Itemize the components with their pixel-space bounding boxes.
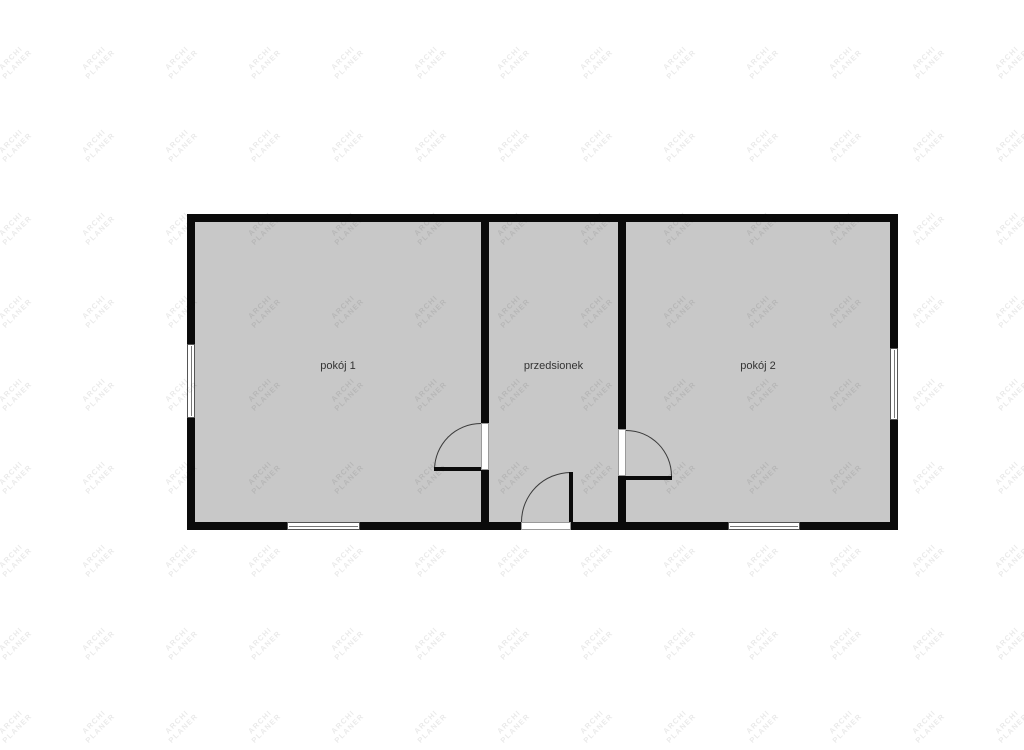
watermark-text: ARCHIPLANER [0, 119, 39, 168]
watermark-text: ARCHIPLANER [72, 202, 121, 251]
watermark-text: ARCHIPLANER [902, 534, 951, 583]
watermark-text: ARCHIPLANER [985, 700, 1024, 749]
watermark-text: ARCHIPLANER [736, 700, 785, 749]
watermark-text: ARCHIPLANER [653, 700, 702, 749]
watermark-text: ARCHIPLANER [0, 617, 39, 666]
watermark-text: ARCHIPLANER [902, 285, 951, 334]
watermark-text: ARCHIPLANER [238, 700, 287, 749]
floor-plan: pokój 1 przedsionek pokój 2 [187, 214, 898, 530]
watermark-text: ARCHIPLANER [404, 700, 453, 749]
watermark-text: ARCHIPLANER [238, 534, 287, 583]
window-bottom-pokoj-2 [728, 522, 800, 530]
watermark-text: ARCHIPLANER [238, 119, 287, 168]
watermark-text: ARCHIPLANER [72, 451, 121, 500]
watermark-text: ARCHIPLANER [985, 119, 1024, 168]
watermark-text: ARCHIPLANER [985, 285, 1024, 334]
watermark-text: ARCHIPLANER [321, 36, 370, 85]
room-label-przedsionek: przedsionek [524, 360, 583, 372]
door-opening-pokoj-1 [481, 423, 489, 470]
watermark-text: ARCHIPLANER [155, 700, 204, 749]
watermark-text: ARCHIPLANER [819, 700, 868, 749]
watermark-text: ARCHIPLANER [570, 119, 619, 168]
watermark-text: ARCHIPLANER [985, 617, 1024, 666]
watermark-text: ARCHIPLANER [72, 119, 121, 168]
room-label-pokoj-2: pokój 2 [740, 360, 775, 372]
watermark-text: ARCHIPLANER [72, 700, 121, 749]
watermark-text: ARCHIPLANER [985, 368, 1024, 417]
watermark-text: ARCHIPLANER [819, 119, 868, 168]
watermark-text: ARCHIPLANER [238, 36, 287, 85]
watermark-text: ARCHIPLANER [155, 36, 204, 85]
watermark-text: ARCHIPLANER [985, 202, 1024, 251]
watermark-text: ARCHIPLANER [902, 368, 951, 417]
door-leaf-pokoj-2 [626, 476, 672, 480]
watermark-text: ARCHIPLANER [404, 617, 453, 666]
watermark-text: ARCHIPLANER [902, 36, 951, 85]
watermark-text: ARCHIPLANER [902, 119, 951, 168]
watermark-text: ARCHIPLANER [321, 700, 370, 749]
watermark-text: ARCHIPLANER [570, 36, 619, 85]
door-leaf-pokoj-1 [434, 467, 481, 471]
watermark-text: ARCHIPLANER [736, 36, 785, 85]
watermark-text: ARCHIPLANER [736, 119, 785, 168]
watermark-text: ARCHIPLANER [404, 36, 453, 85]
watermark-text: ARCHIPLANER [72, 285, 121, 334]
watermark-text: ARCHIPLANER [0, 368, 39, 417]
watermark-text: ARCHIPLANER [0, 36, 39, 85]
watermark-text: ARCHIPLANER [653, 36, 702, 85]
watermark-text: ARCHIPLANER [72, 36, 121, 85]
door-opening-pokoj-2 [618, 429, 626, 476]
watermark-text: ARCHIPLANER [72, 617, 121, 666]
watermark-text: ARCHIPLANER [736, 534, 785, 583]
room-pokoj-1: pokój 1 [195, 222, 481, 522]
watermark-text: ARCHIPLANER [902, 451, 951, 500]
watermark-text: ARCHIPLANER [653, 617, 702, 666]
watermark-text: ARCHIPLANER [487, 119, 536, 168]
door-opening-entrance [521, 522, 571, 530]
room-label-pokoj-1: pokój 1 [320, 360, 355, 372]
watermark-text: ARCHIPLANER [653, 119, 702, 168]
watermark-text: ARCHIPLANER [819, 617, 868, 666]
watermark-text: ARCHIPLANER [0, 700, 39, 749]
door-leaf-entrance [569, 472, 573, 522]
watermark-text: ARCHIPLANER [321, 617, 370, 666]
watermark-text: ARCHIPLANER [653, 534, 702, 583]
watermark-text: ARCHIPLANER [819, 36, 868, 85]
watermark-text: ARCHIPLANER [736, 617, 785, 666]
watermark-text: ARCHIPLANER [902, 700, 951, 749]
watermark-text: ARCHIPLANER [487, 36, 536, 85]
watermark-text: ARCHIPLANER [985, 534, 1024, 583]
watermark-text: ARCHIPLANER [570, 617, 619, 666]
watermark-text: ARCHIPLANER [404, 534, 453, 583]
watermark-text: ARCHIPLANER [0, 451, 39, 500]
watermark-text: ARCHIPLANER [487, 700, 536, 749]
watermark-text: ARCHIPLANER [902, 617, 951, 666]
watermark-text: ARCHIPLANER [321, 119, 370, 168]
watermark-text: ARCHIPLANER [487, 617, 536, 666]
watermark-text: ARCHIPLANER [72, 534, 121, 583]
watermark-text: ARCHIPLANER [819, 534, 868, 583]
watermark-text: ARCHIPLANER [72, 368, 121, 417]
watermark-text: ARCHIPLANER [0, 202, 39, 251]
watermark-text: ARCHIPLANER [570, 534, 619, 583]
watermark-text: ARCHIPLANER [570, 700, 619, 749]
watermark-text: ARCHIPLANER [238, 617, 287, 666]
watermark-text: ARCHIPLANER [155, 617, 204, 666]
watermark-text: ARCHIPLANER [404, 119, 453, 168]
window-bottom-pokoj-1 [287, 522, 360, 530]
watermark-text: ARCHIPLANER [985, 451, 1024, 500]
watermark-text: ARCHIPLANER [0, 534, 39, 583]
watermark-text: ARCHIPLANER [985, 36, 1024, 85]
floorplan-canvas: pokój 1 przedsionek pokój 2 ARCHIPLANERA… [0, 0, 1024, 750]
watermark-text: ARCHIPLANER [155, 534, 204, 583]
watermark-text: ARCHIPLANER [155, 119, 204, 168]
window-right-wall [890, 348, 898, 420]
watermark-text: ARCHIPLANER [487, 534, 536, 583]
window-left-wall [187, 344, 195, 418]
watermark-text: ARCHIPLANER [902, 202, 951, 251]
watermark-text: ARCHIPLANER [321, 534, 370, 583]
watermark-text: ARCHIPLANER [0, 285, 39, 334]
